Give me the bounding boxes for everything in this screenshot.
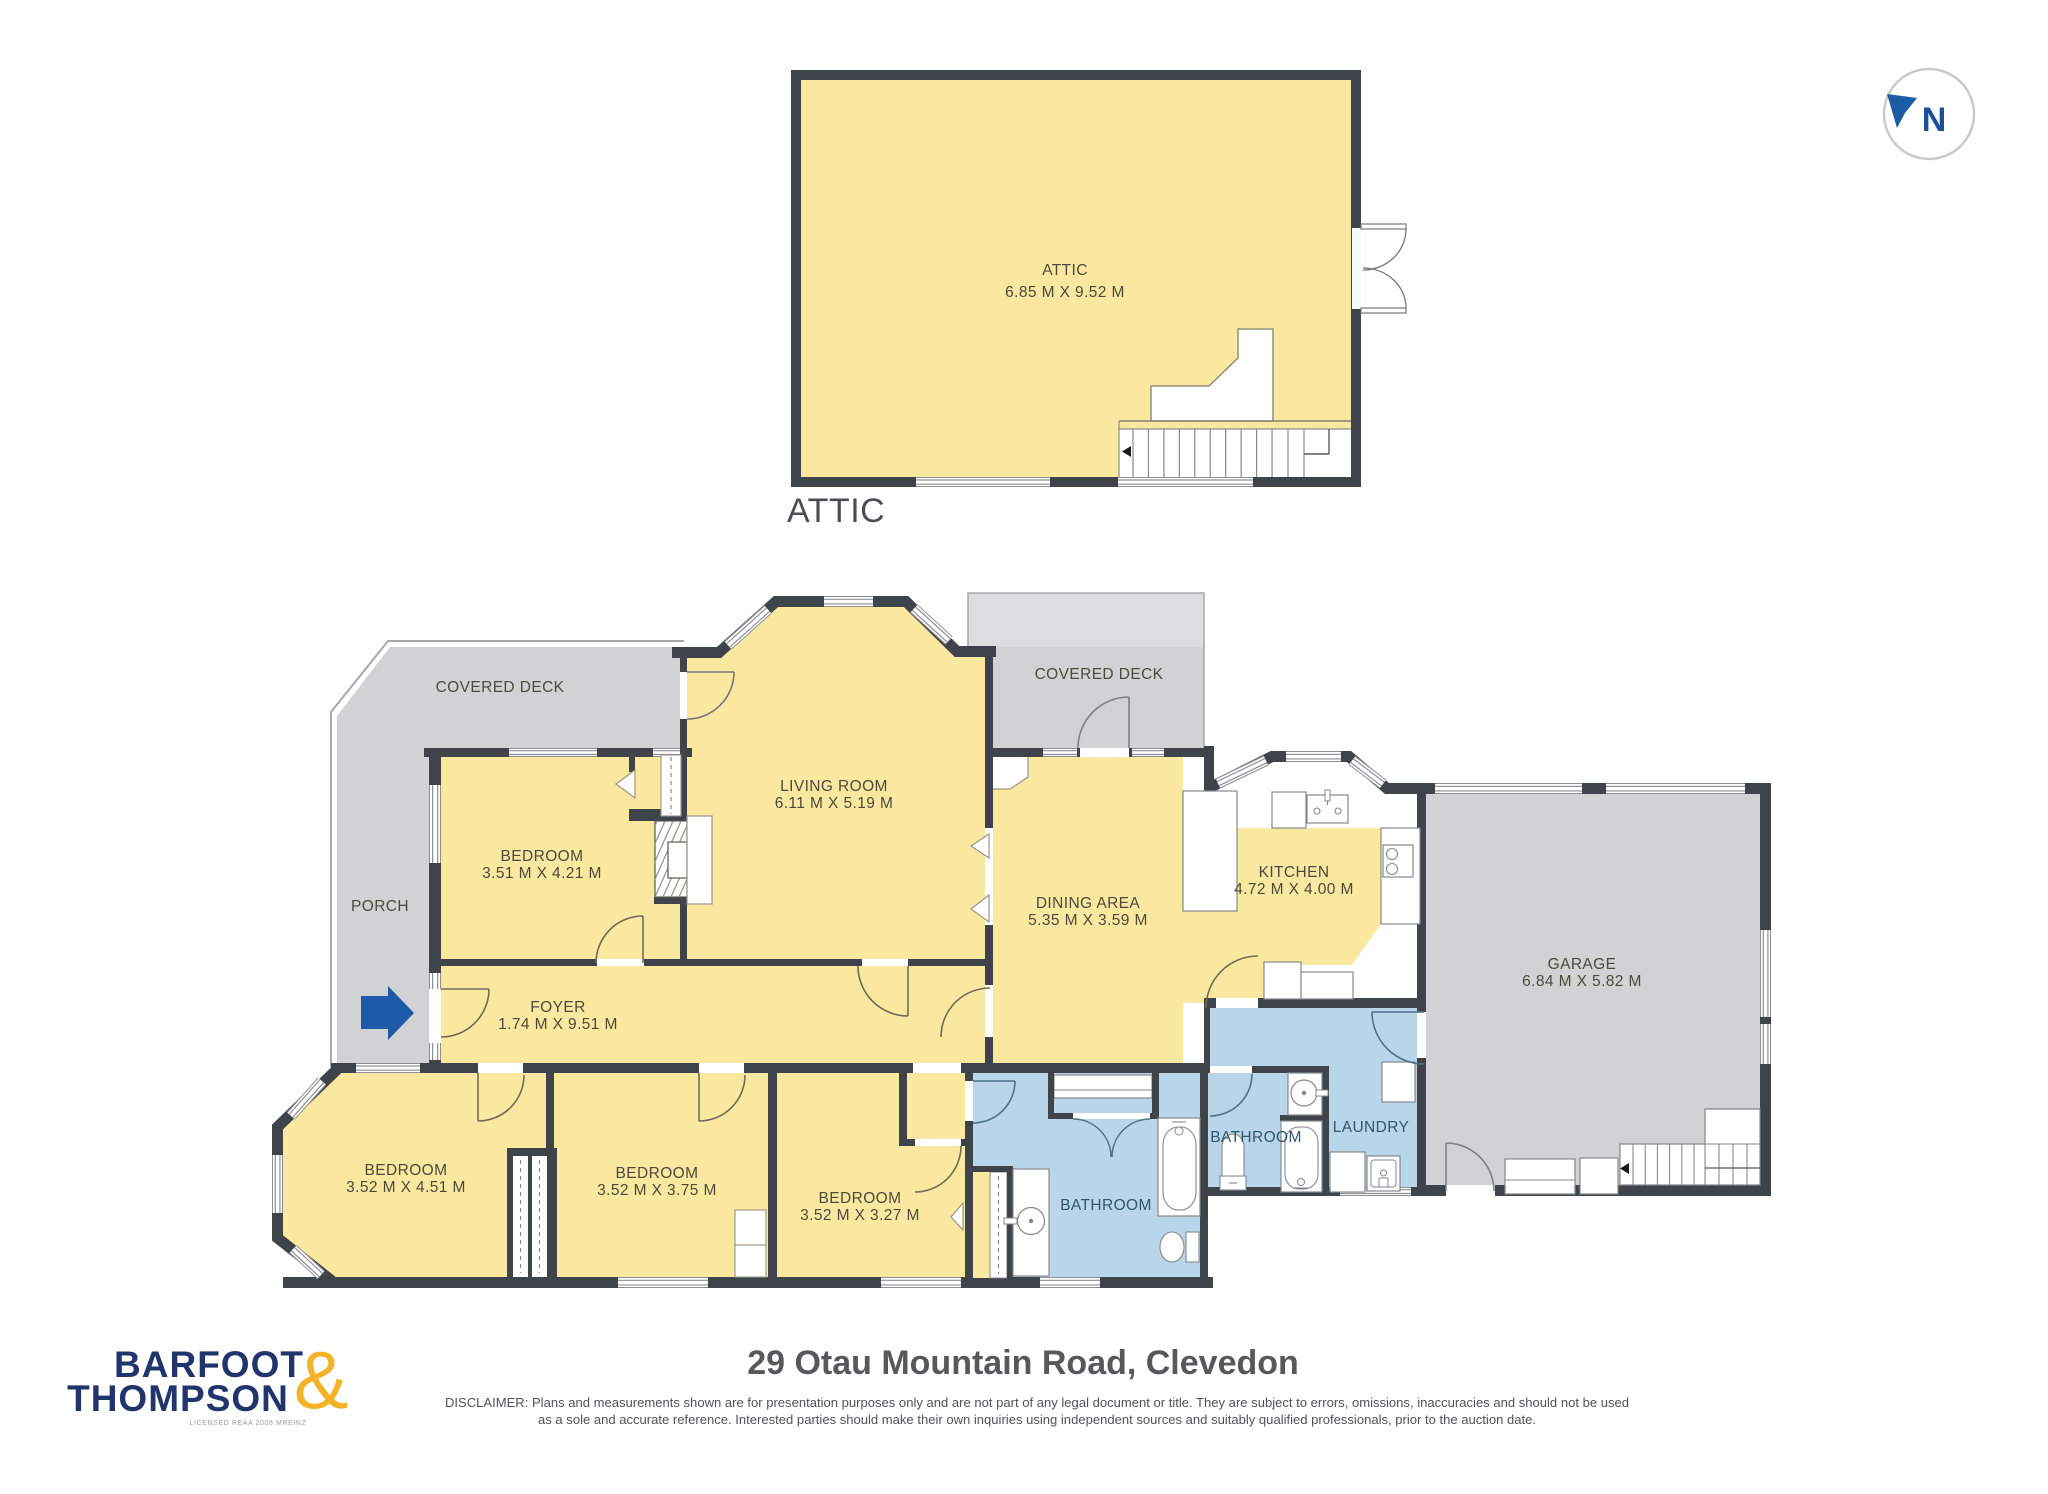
svg-text:3.52 M X 3.27 M: 3.52 M X 3.27 M — [800, 1207, 920, 1224]
svg-text:3.51 M X 4.21 M: 3.51 M X 4.21 M — [482, 865, 602, 882]
svg-text:3.52 M X 3.75 M: 3.52 M X 3.75 M — [597, 1182, 717, 1199]
svg-text:6.11 M X 5.19 M: 6.11 M X 5.19 M — [775, 795, 894, 812]
svg-text:COVERED DECK: COVERED DECK — [436, 679, 565, 696]
svg-text:N: N — [1922, 101, 1947, 139]
svg-text:5.35 M X 3.59 M: 5.35 M X 3.59 M — [1028, 912, 1148, 929]
svg-text:4.72 M X 4.00 M: 4.72 M X 4.00 M — [1234, 881, 1354, 898]
svg-text:3.52 M X 4.51 M: 3.52 M X 4.51 M — [346, 1179, 466, 1196]
svg-text:GARAGE: GARAGE — [1548, 956, 1617, 973]
svg-text:LAUNDRY: LAUNDRY — [1333, 1119, 1410, 1136]
svg-text:COVERED DECK: COVERED DECK — [1035, 666, 1164, 683]
svg-text:LICENSED REAA 2008 MREINZ: LICENSED REAA 2008 MREINZ — [190, 1420, 307, 1427]
svg-text:&: & — [294, 1335, 349, 1426]
svg-text:BATHROOM: BATHROOM — [1060, 1197, 1152, 1214]
svg-text:6.84 M X 5.82 M: 6.84 M X 5.82 M — [1522, 973, 1642, 990]
svg-text:29 Otau Mountain Road, Clevedo: 29 Otau Mountain Road, Clevedon — [747, 1344, 1299, 1382]
svg-text:ATTIC: ATTIC — [1042, 262, 1088, 279]
svg-text:DISCLAIMER: Plans and measurem: DISCLAIMER: Plans and measurements shown… — [445, 1395, 1629, 1410]
svg-text:FOYER: FOYER — [530, 999, 585, 1016]
svg-text:KITCHEN: KITCHEN — [1259, 864, 1330, 881]
svg-text:THOMPSON: THOMPSON — [67, 1378, 289, 1419]
svg-text:BEDROOM: BEDROOM — [501, 848, 584, 865]
svg-text:BEDROOM: BEDROOM — [365, 1162, 448, 1179]
svg-text:1.74 M X 9.51 M: 1.74 M X 9.51 M — [498, 1016, 618, 1033]
svg-text:LIVING ROOM: LIVING ROOM — [780, 778, 888, 795]
svg-text:DINING AREA: DINING AREA — [1036, 895, 1141, 912]
svg-text:PORCH: PORCH — [351, 898, 409, 915]
svg-text:as a sole and accurate referen: as a sole and accurate reference. Intere… — [538, 1412, 1536, 1427]
svg-text:BEDROOM: BEDROOM — [819, 1190, 902, 1207]
svg-text:6.85 M X 9.52 M: 6.85 M X 9.52 M — [1005, 284, 1125, 301]
svg-text:BATHROOM: BATHROOM — [1210, 1129, 1302, 1146]
svg-text:ATTIC: ATTIC — [787, 492, 885, 530]
svg-text:BEDROOM: BEDROOM — [616, 1165, 699, 1182]
